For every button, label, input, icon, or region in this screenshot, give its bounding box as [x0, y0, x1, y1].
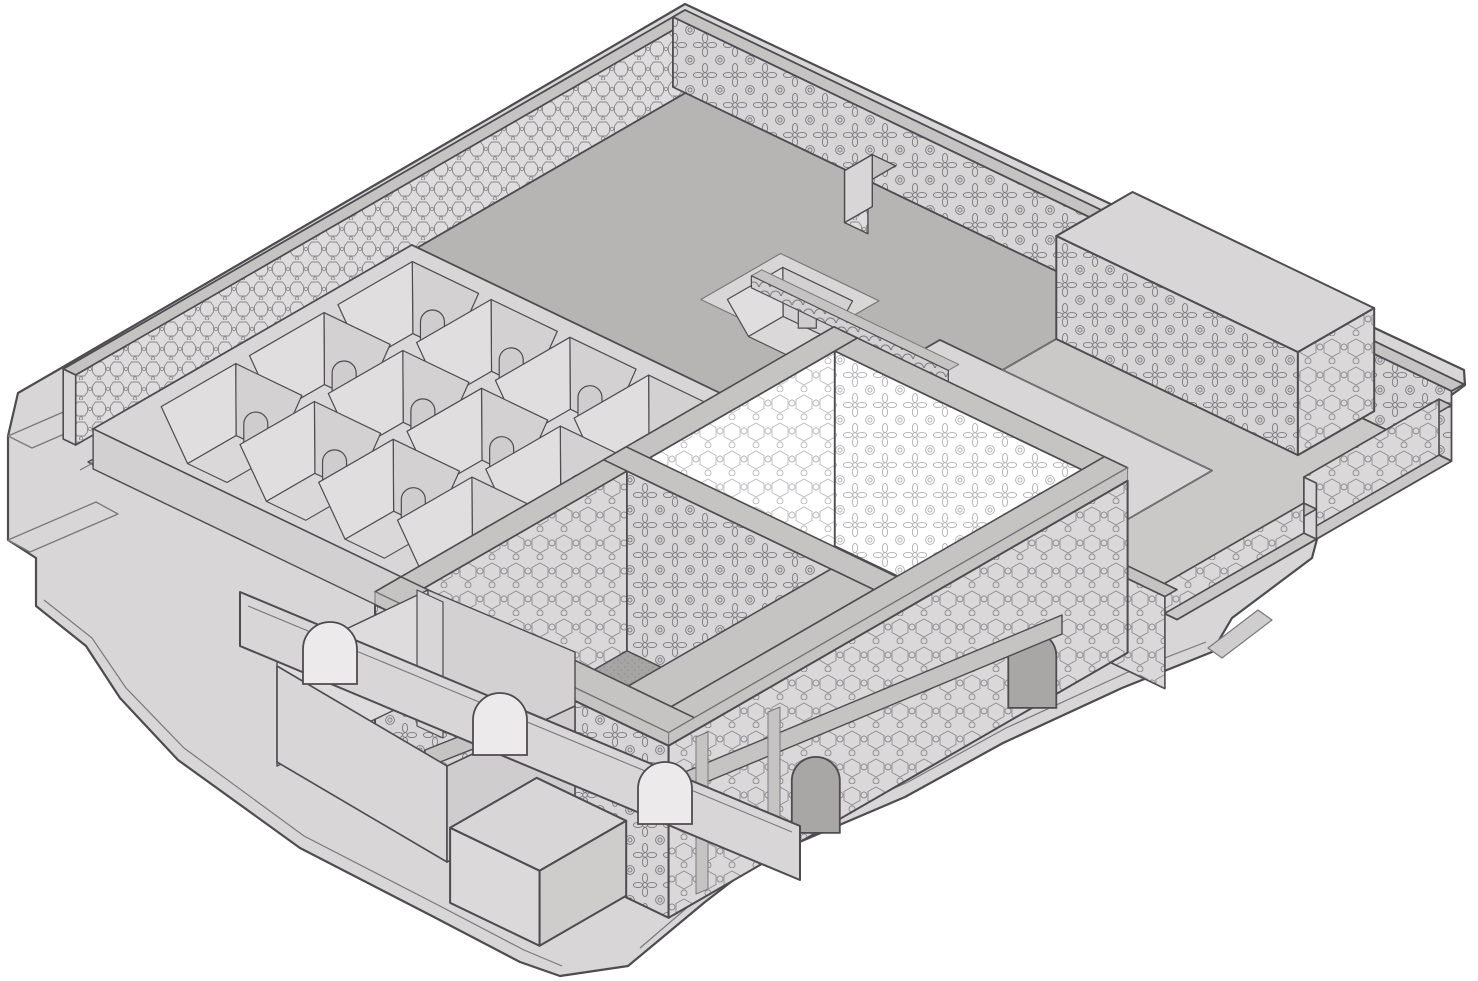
arcade-arch-2	[473, 693, 527, 755]
rear-left-parapet-endcap	[63, 369, 75, 445]
facade-arch-door-1	[792, 757, 840, 833]
axonometric-architectural-drawing	[0, 0, 1478, 981]
drawing-shapes	[8, 4, 1465, 976]
illustration-canvas	[0, 0, 1478, 981]
arcade-arch-1	[303, 622, 357, 684]
arcade-arch-3	[638, 762, 692, 824]
